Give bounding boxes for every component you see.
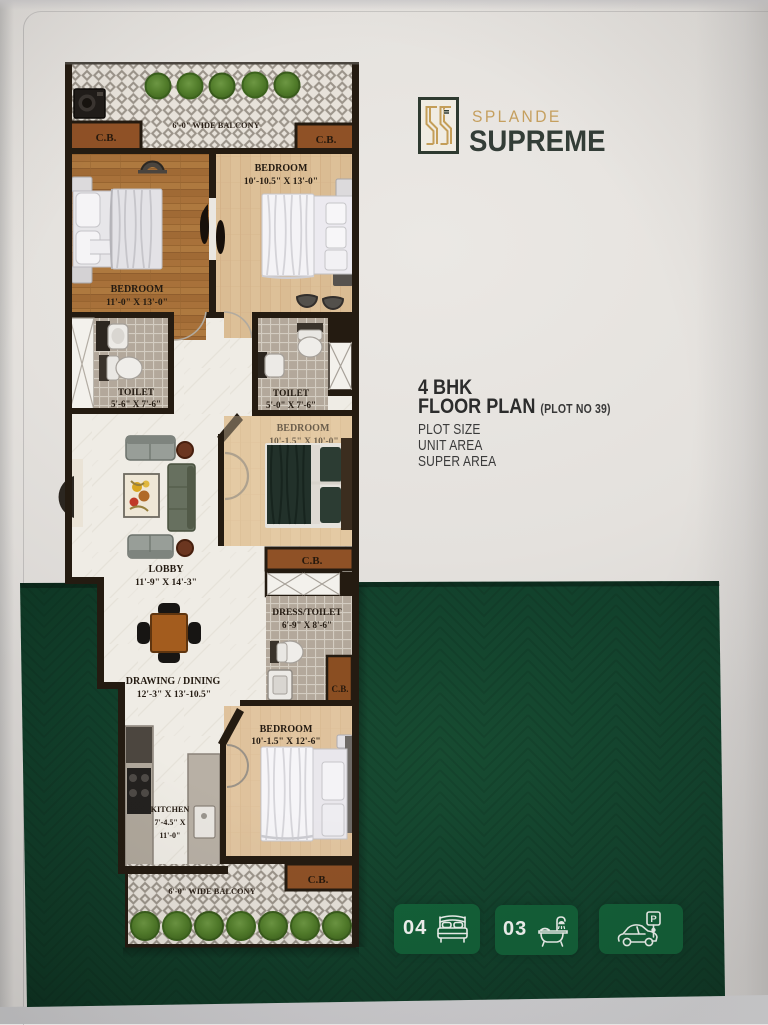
svg-text:C.B.: C.B. <box>96 132 117 144</box>
svg-text:KITCHEN: KITCHEN <box>151 805 190 814</box>
svg-text:6'-9" X 8'-6": 6'-9" X 8'-6" <box>282 620 332 630</box>
svg-text:10'-1.5" X 12'-6": 10'-1.5" X 12'-6" <box>251 737 320 747</box>
svg-text:6'-0" WIDE BALCONY: 6'-0" WIDE BALCONY <box>168 887 255 896</box>
svg-text:BEDROOM: BEDROOM <box>255 163 308 174</box>
svg-text:C.B.: C.B. <box>316 134 337 146</box>
svg-text:P: P <box>650 914 657 925</box>
svg-text:TOILET: TOILET <box>118 388 155 398</box>
svg-text:LOBBY: LOBBY <box>148 564 184 575</box>
svg-text:10'-10.5" X 13'-0": 10'-10.5" X 13'-0" <box>244 177 318 187</box>
svg-text:BEDROOM: BEDROOM <box>260 724 313 735</box>
svg-text:5'-0" X 7'-6": 5'-0" X 7'-6" <box>266 400 316 410</box>
svg-text:11'-9" X 14'-3": 11'-9" X 14'-3" <box>135 578 197 588</box>
svg-text:C.B.: C.B. <box>331 684 348 694</box>
svg-text:TOILET: TOILET <box>273 389 310 399</box>
svg-text:DRAWING / DINING: DRAWING / DINING <box>126 676 221 687</box>
svg-text:11'-0" X 13'-0": 11'-0" X 13'-0" <box>106 298 168 308</box>
svg-text:C.B.: C.B. <box>308 874 329 886</box>
svg-text:C.B.: C.B. <box>302 555 323 567</box>
svg-text:BEDROOM: BEDROOM <box>111 284 164 295</box>
svg-text:11'-0": 11'-0" <box>160 831 181 840</box>
svg-text:12'-3" X 13'-10.5": 12'-3" X 13'-10.5" <box>137 690 211 700</box>
svg-text:5'-6" X 7'-6": 5'-6" X 7'-6" <box>111 399 161 409</box>
svg-text:DRESS/TOILET: DRESS/TOILET <box>272 608 342 618</box>
svg-text:6'-0" WIDE BALCONY: 6'-0" WIDE BALCONY <box>172 121 259 130</box>
svg-text:7'-4.5" X: 7'-4.5" X <box>154 818 185 827</box>
